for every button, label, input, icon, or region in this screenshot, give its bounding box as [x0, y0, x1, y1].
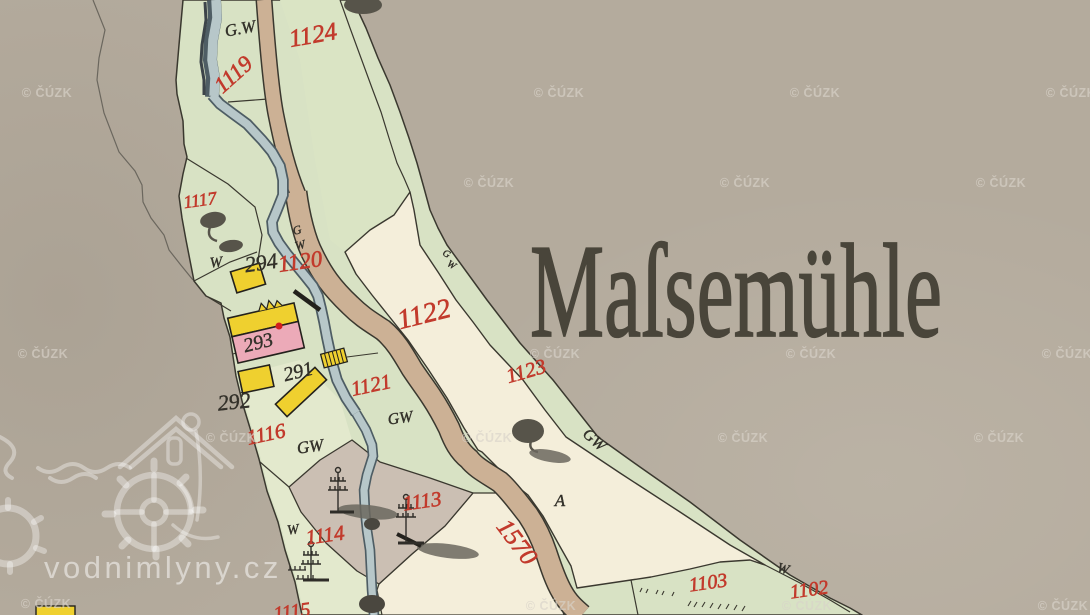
- svg-text:© ČÚZK: © ČÚZK: [464, 175, 514, 190]
- svg-text:292: 292: [216, 387, 251, 415]
- svg-text:Maſsemühle: Maſsemühle: [530, 217, 942, 365]
- svg-text:© ČÚZK: © ČÚZK: [976, 175, 1026, 190]
- svg-text:294: 294: [243, 248, 279, 277]
- svg-text:© ČÚZK: © ČÚZK: [1046, 85, 1090, 100]
- svg-text:© ČÚZK: © ČÚZK: [462, 430, 512, 445]
- svg-text:© ČÚZK: © ČÚZK: [526, 598, 576, 613]
- svg-text:© ČÚZK: © ČÚZK: [720, 175, 770, 190]
- svg-text:© ČÚZK: © ČÚZK: [530, 346, 580, 361]
- svg-text:A: A: [554, 491, 566, 510]
- svg-text:© ČÚZK: © ČÚZK: [1038, 598, 1088, 613]
- svg-text:© ČÚZK: © ČÚZK: [206, 430, 256, 445]
- svg-text:© ČÚZK: © ČÚZK: [1042, 346, 1090, 361]
- svg-text:GW: GW: [296, 435, 327, 458]
- svg-text:© ČÚZK: © ČÚZK: [790, 85, 840, 100]
- svg-text:© ČÚZK: © ČÚZK: [21, 596, 71, 611]
- svg-text:© ČÚZK: © ČÚZK: [534, 85, 584, 100]
- svg-text:© ČÚZK: © ČÚZK: [782, 598, 832, 613]
- svg-text:© ČÚZK: © ČÚZK: [786, 346, 836, 361]
- svg-text:vodnimlyny.cz: vodnimlyny.cz: [44, 550, 282, 585]
- svg-text:© ČÚZK: © ČÚZK: [18, 346, 68, 361]
- svg-text:© ČÚZK: © ČÚZK: [718, 430, 768, 445]
- svg-text:© ČÚZK: © ČÚZK: [974, 430, 1024, 445]
- svg-text:© ČÚZK: © ČÚZK: [22, 85, 72, 100]
